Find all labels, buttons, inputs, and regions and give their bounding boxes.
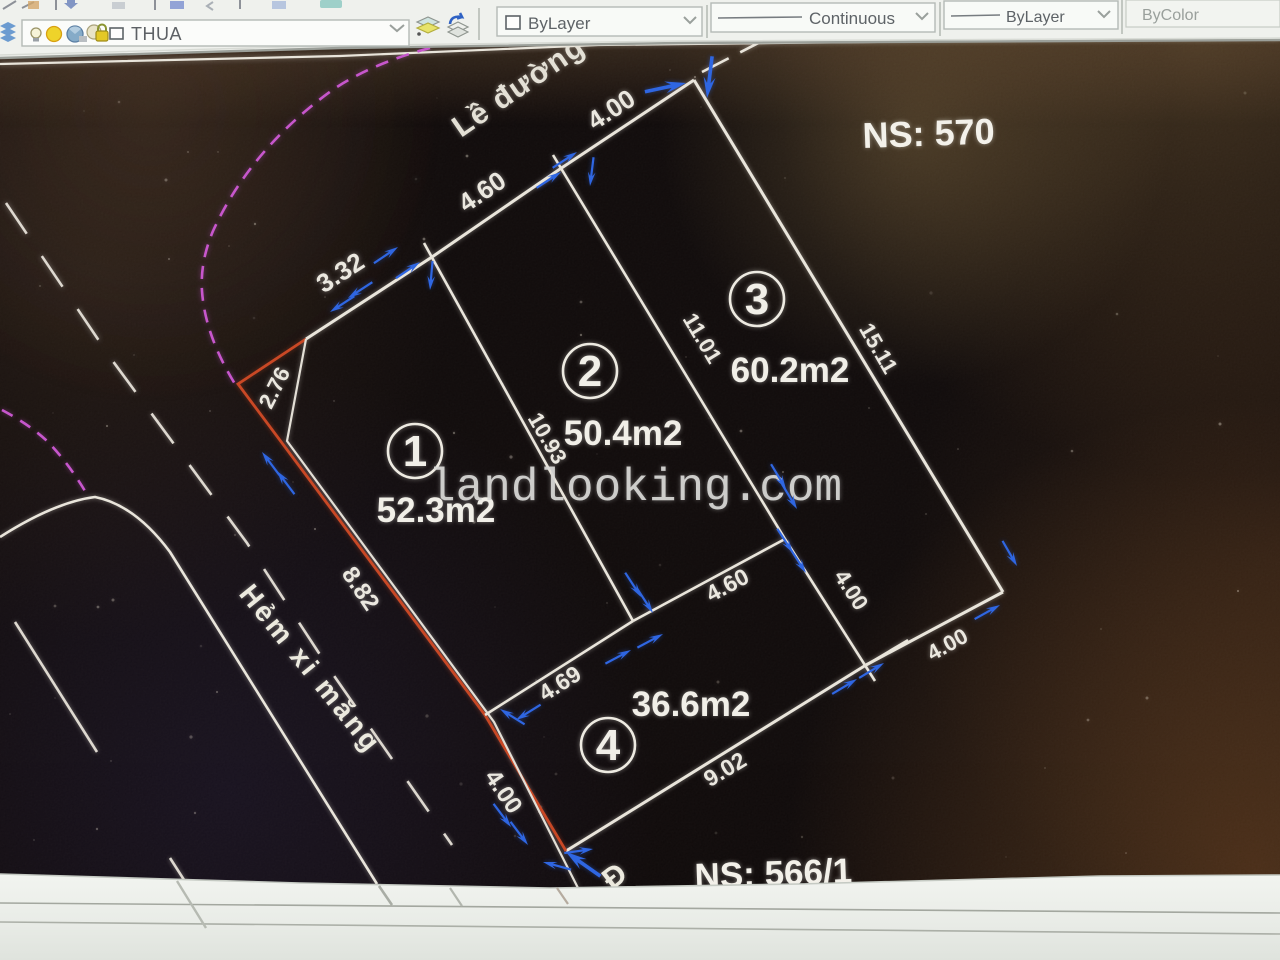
svg-text:ByColor: ByColor [1142,7,1200,24]
svg-text:Continuous: Continuous [809,9,895,28]
svg-text:ByLayer: ByLayer [528,14,591,33]
svg-text:ByLayer: ByLayer [1006,9,1065,26]
svg-text:THUA: THUA [131,24,182,44]
